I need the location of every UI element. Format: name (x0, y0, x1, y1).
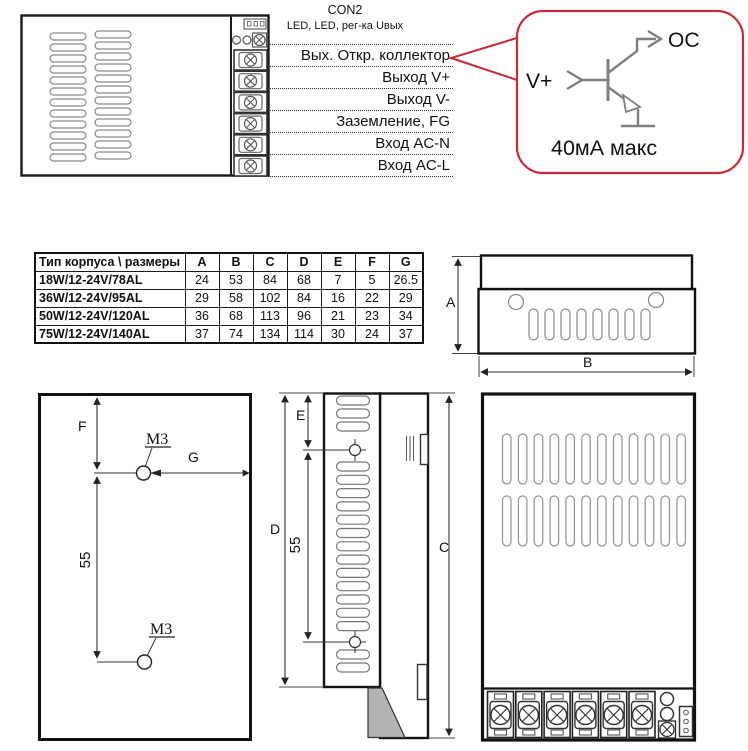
value-cell: 84 (287, 289, 321, 307)
table-header-g: G (389, 253, 423, 271)
table-row: 36W/12-24V/95AL 29 58 102 84 16 22 29 (35, 289, 423, 307)
value-cell: 102 (253, 289, 287, 307)
terminal-labels: Вых. Откр. коллектор Выход V+ Выход V- З… (266, 44, 453, 177)
value-cell: 68 (219, 307, 253, 325)
value-cell: 24 (185, 271, 219, 289)
model-cell: 50W/12-24V/120AL (35, 307, 185, 325)
value-cell: 68 (287, 271, 321, 289)
dim-label-f: F (78, 418, 87, 434)
dim-label-e: E (296, 407, 305, 423)
psu-top-view-drawing (20, 13, 272, 179)
value-cell: 21 (321, 307, 355, 325)
table-header-f: F (355, 253, 389, 271)
hole-label-m3: M3 (150, 621, 172, 638)
value-cell: 134 (253, 325, 287, 343)
led-indicator-icon (661, 708, 674, 721)
value-cell: 34 (389, 307, 423, 325)
value-cell: 113 (253, 307, 287, 325)
callout-current-note: 40мА макс (551, 136, 657, 160)
table-header-c: C (253, 253, 287, 271)
terminal-label-row: Вых. Откр. коллектор (266, 45, 453, 67)
dim-label-55: 55 (77, 552, 94, 569)
table-row: 18W/12-24V/78AL 24 53 84 68 7 5 26.5 (35, 271, 423, 289)
dim-label-d: D (270, 521, 280, 537)
terminal-label-row: Вход AC-L (266, 155, 453, 177)
value-cell: 37 (389, 325, 423, 343)
dim-label-c: C (439, 539, 449, 555)
side-view-drawing: A B (444, 247, 748, 380)
model-cell: 18W/12-24V/78AL (35, 271, 185, 289)
mounting-hole-icon (137, 466, 151, 480)
table-header-model: Тип корпуса \ размеры (35, 253, 185, 271)
profile-view-drawing: D E 55 C (262, 388, 460, 750)
table-header-a: A (185, 253, 219, 271)
con2-connector-icon (680, 707, 693, 737)
terminal-label-row: Выход V- (266, 89, 453, 111)
terminal-label-row: Заземление, FG (266, 111, 453, 133)
value-cell: 58 (219, 289, 253, 307)
value-cell: 5 (355, 271, 389, 289)
led-indicator-icon (661, 693, 674, 706)
value-cell: 29 (389, 289, 423, 307)
dim-label-g: G (188, 449, 199, 465)
table-header-row: Тип корпуса \ размеры A B C D E F G (35, 253, 423, 271)
dim-label-b: B (583, 354, 592, 370)
voltage-trim-pot-icon (659, 721, 676, 738)
model-cell: 75W/12-24V/140AL (35, 325, 185, 343)
con2-label: CON2 (253, 3, 437, 17)
open-collector-callout: V+ OC 40мА макс (444, 4, 748, 182)
value-cell: 30 (321, 325, 355, 343)
table-row: 50W/12-24V/120AL 36 68 113 96 21 23 34 (35, 307, 423, 325)
terminal-label-row: Вход AC-N (266, 133, 453, 155)
value-cell: 84 (253, 271, 287, 289)
dim-label-55: 55 (287, 537, 304, 554)
value-cell: 114 (287, 325, 321, 343)
table-header-e: E (321, 253, 355, 271)
mounting-layout-drawing: F G 55 M3 M3 (30, 388, 258, 750)
table-row: 75W/12-24V/140AL 37 74 134 114 30 24 37 (35, 325, 423, 343)
callout-output-label: OC (668, 29, 700, 52)
callout-input-label: V+ (526, 70, 552, 93)
con2-sublabel: LED, LED, рег-ка Uвых (253, 20, 437, 32)
table-header-b: B (219, 253, 253, 271)
dim-label-a: A (446, 294, 456, 310)
model-cell: 36W/12-24V/95AL (35, 289, 185, 307)
datasheet-page: CON2 LED, LED, рег-ка Uвых Вых. Откр. ко… (0, 0, 748, 751)
value-cell: 29 (185, 289, 219, 307)
mounting-hole-icon (138, 655, 152, 669)
value-cell: 22 (355, 289, 389, 307)
front-view-drawing (475, 388, 705, 750)
screw-terminal-block-top-view (234, 50, 267, 176)
value-cell: 74 (219, 325, 253, 343)
value-cell: 16 (321, 289, 355, 307)
table-header-d: D (287, 253, 321, 271)
callout-tail-fill (451, 37, 516, 81)
value-cell: 53 (219, 271, 253, 289)
value-cell: 26.5 (389, 271, 423, 289)
voltage-trim-pot-icon (253, 33, 267, 47)
value-cell: 23 (355, 307, 389, 325)
value-cell: 7 (321, 271, 355, 289)
hole-label-m3: M3 (146, 431, 168, 448)
dimensions-table: Тип корпуса \ размеры A B C D E F G 18W/… (34, 252, 424, 344)
value-cell: 96 (287, 307, 321, 325)
terminal-label-row: Выход V+ (266, 67, 453, 89)
value-cell: 37 (185, 325, 219, 343)
value-cell: 24 (355, 325, 389, 343)
value-cell: 36 (185, 307, 219, 325)
